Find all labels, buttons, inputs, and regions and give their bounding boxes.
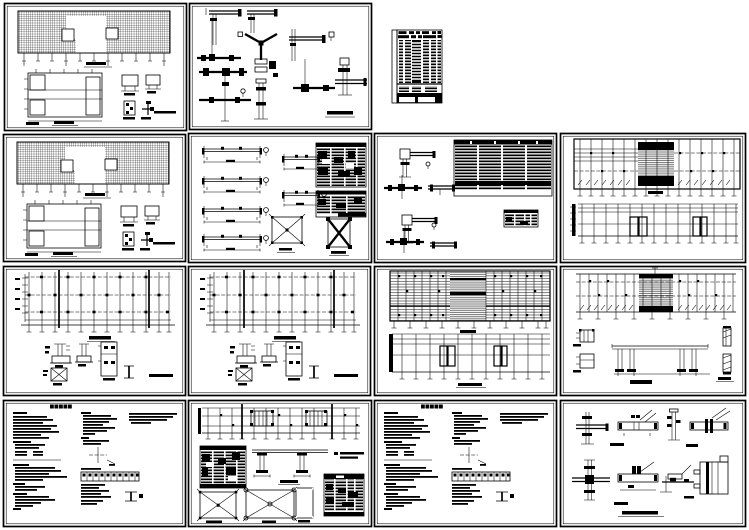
cad-sheet-collage xyxy=(0,0,749,530)
sheet-general-notes-2 xyxy=(375,401,557,527)
member-schedule-table xyxy=(454,140,552,196)
sheet-framing-plan-2 xyxy=(4,135,186,262)
drawing-index-table xyxy=(392,30,442,103)
beam-schedule-table xyxy=(316,143,366,217)
sheet-grid-footings-2 xyxy=(189,267,371,396)
sheet-general-notes-1 xyxy=(4,401,186,527)
small-schedule-table xyxy=(504,210,538,227)
sheet-floor-framing-layout xyxy=(375,267,557,396)
sheet-joint-details-schedule xyxy=(375,134,557,263)
bracing-schedule-table-left xyxy=(200,446,246,488)
dense-braced-panel-detail xyxy=(326,217,352,256)
sheet-framing-plan-1 xyxy=(5,4,187,131)
sheet-bracing-schedule xyxy=(189,401,372,527)
sheet-connection-details-1 xyxy=(190,4,372,130)
bracing-schedule-table-right xyxy=(324,474,364,516)
sheet-beam-details xyxy=(189,134,372,263)
sheet-roof-plan-sections xyxy=(561,267,746,396)
braced-panel-detail xyxy=(269,214,305,253)
sheet-roof-framing-grid xyxy=(561,134,746,263)
sheet-connection-details-2 xyxy=(561,401,746,527)
collage-drawing-surface xyxy=(0,0,749,530)
sheet-grid-footings-1 xyxy=(4,267,186,396)
